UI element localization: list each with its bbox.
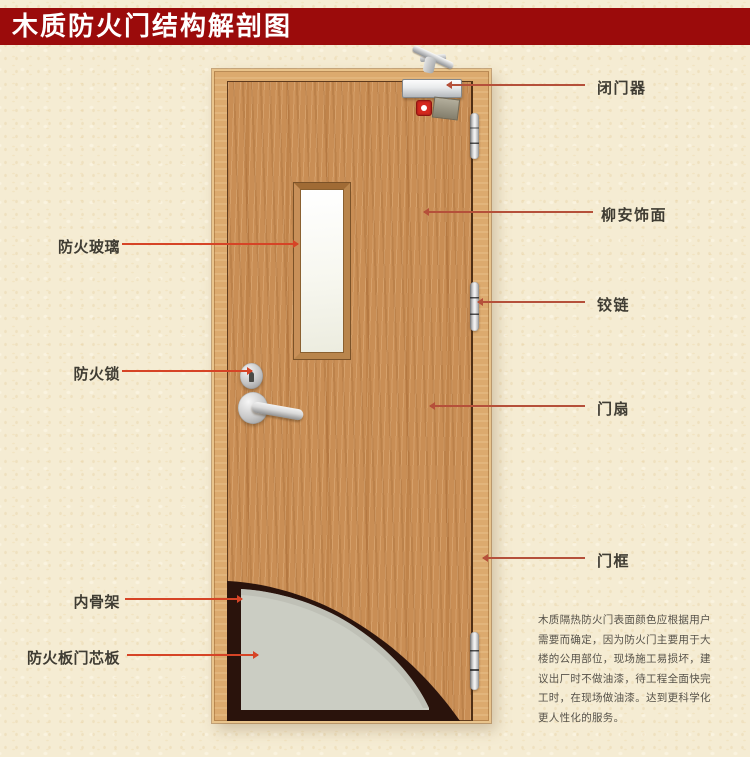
nameplate [432, 96, 460, 120]
leader-door-frame [483, 557, 585, 559]
leader-veneer [424, 211, 593, 213]
leader-fire-glass [122, 243, 298, 245]
leader-door-leaf [430, 405, 585, 407]
cutaway-graphic [227, 576, 473, 721]
label-core-board: 防火板门芯板 [27, 647, 120, 668]
description-text: 木质隔热防火门表面颜色应根据用户 需要而确定，因为防火门主要用于大 楼的公用部位… [538, 611, 718, 728]
label-veneer: 柳安饰面 [601, 204, 667, 225]
hinge-middle [470, 282, 479, 331]
label-door-frame: 门框 [597, 550, 630, 571]
label-fire-glass: 防火玻璃 [58, 236, 120, 257]
label-door-leaf: 门扇 [597, 398, 630, 419]
leader-inner-skeleton [125, 598, 242, 600]
label-door-closer: 闭门器 [597, 77, 647, 98]
leader-core-board [127, 654, 258, 656]
title-banner: 木质防火门结构解剖图 [0, 8, 750, 45]
diagram-canvas: 木质防火门结构解剖图 防火玻璃 防火锁 内骨架 防火板门芯板 [0, 0, 750, 757]
door-closer-body [402, 79, 462, 98]
fire-alarm-badge [416, 100, 432, 116]
label-hinge: 铰链 [597, 294, 630, 315]
label-fire-lock: 防火锁 [73, 363, 120, 384]
leader-fire-lock [122, 370, 252, 372]
page-title: 木质防火门结构解剖图 [0, 8, 750, 45]
glass-window [294, 183, 350, 359]
door-frame [212, 69, 491, 723]
leader-hinge [478, 301, 585, 303]
hinge-top [470, 113, 479, 159]
label-inner-skeleton: 内骨架 [73, 591, 120, 612]
leader-door-closer [447, 84, 585, 86]
door-closer-arm-link [422, 56, 436, 74]
core-panel-shape [241, 589, 429, 710]
